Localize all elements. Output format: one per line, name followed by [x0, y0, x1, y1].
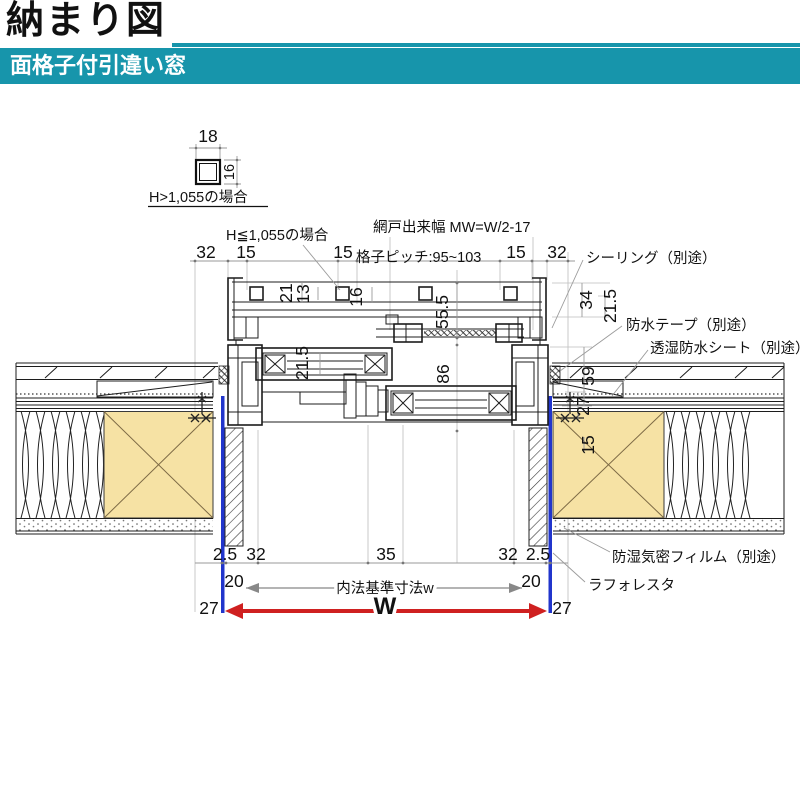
dim-55-5: 55.5	[432, 295, 452, 329]
screen-mesh	[424, 330, 496, 336]
dim-15-side: 15	[578, 435, 598, 454]
callout-sealing: シーリング（別途）	[586, 250, 717, 267]
inset-detail: 18 16 H>1,055の場合	[148, 126, 268, 207]
dim-59: 59	[578, 366, 598, 385]
window-frame	[228, 345, 548, 425]
siding-hatch	[45, 367, 215, 378]
sash-rail	[262, 380, 346, 392]
siding-hatch	[570, 367, 784, 378]
screen-clip	[386, 315, 398, 324]
callout-sheet: 透湿防水シート（別途）	[650, 340, 800, 357]
dim-32-left: 32	[246, 544, 265, 564]
dim-top-32-right: 32	[547, 242, 566, 262]
insulation-batt	[18, 412, 104, 519]
arrowhead-left	[246, 583, 259, 593]
nailing-fin	[550, 366, 560, 384]
outer-sash	[256, 348, 392, 404]
dim-34: 34	[576, 290, 596, 310]
jamb-filler-right	[529, 428, 547, 546]
inner-sash	[386, 386, 516, 420]
casing-line-right	[549, 396, 553, 613]
grille-bar	[250, 287, 263, 300]
dim-2-5-left: 2.5	[213, 544, 237, 564]
jamb-filler-left	[225, 428, 243, 546]
interior-board	[16, 520, 213, 531]
wall-left	[16, 363, 229, 534]
grille-end-right	[532, 278, 546, 340]
callout-laforesta: ラフォレスタ	[588, 577, 675, 594]
screen-width-note: 網戸出来幅 MW=W/2-17	[373, 219, 531, 236]
grille-end-left	[228, 278, 243, 340]
inset-height-dim: 16	[222, 164, 238, 180]
dim-21-5-sash: 21.5	[292, 346, 312, 380]
callout-film: 防湿気密フィルム（別途）	[612, 549, 785, 566]
dim-top-15-mid: 15	[333, 242, 352, 262]
grille-case-note: H≦1,055の場合	[226, 227, 329, 244]
w-arrowhead-left	[225, 603, 243, 619]
callout-tape: 防水テープ（別途）	[626, 317, 756, 334]
dim-35: 35	[376, 544, 395, 564]
dim-86: 86	[433, 364, 453, 383]
dim-27-side: 27	[573, 396, 593, 415]
grille-pitch-note: 格子ピッチ:95~103	[356, 249, 481, 266]
page: 納まり図 面格子付引違い窓	[0, 0, 800, 800]
dim-top-32-left: 32	[196, 242, 215, 262]
frame-jamb-left	[228, 345, 262, 425]
dim-27-right: 27	[552, 598, 571, 618]
w-label: W	[374, 593, 397, 620]
dim-row-bottom: 2.5 32 35 32 2.5 20 20 内法基準寸法w 27 27 W	[195, 544, 572, 620]
arrowhead-right	[509, 583, 522, 593]
installation-drawing: 18 16 H>1,055の場合	[0, 0, 800, 800]
insulation-batt	[664, 412, 751, 519]
dim-16: 16	[346, 287, 366, 306]
dim-20-left: 20	[224, 571, 244, 591]
dim-21-5: 21.5	[600, 289, 620, 323]
dim-2-5-right: 2.5	[526, 544, 550, 564]
dim-13: 13	[293, 284, 313, 303]
dim-row-top: 32 15 15 15 32 格子ピッチ:95~103 H≦1,055の場合 網…	[190, 219, 575, 290]
interior-board	[553, 520, 784, 531]
inset-caption: H>1,055の場合	[149, 189, 248, 206]
dim-top-15-right: 15	[506, 242, 525, 262]
screen-stile-left	[394, 324, 422, 342]
grille-bar	[419, 287, 432, 300]
dim-32-right: 32	[498, 544, 517, 564]
dim-27-left: 27	[199, 598, 218, 618]
dim-top-15-left: 15	[236, 242, 255, 262]
dim-20-right: 20	[521, 571, 541, 591]
w-arrowhead-right	[529, 603, 547, 619]
frame-jamb-right	[512, 345, 548, 425]
inset-width-dim: 18	[198, 126, 217, 146]
grille-bar	[504, 287, 517, 300]
